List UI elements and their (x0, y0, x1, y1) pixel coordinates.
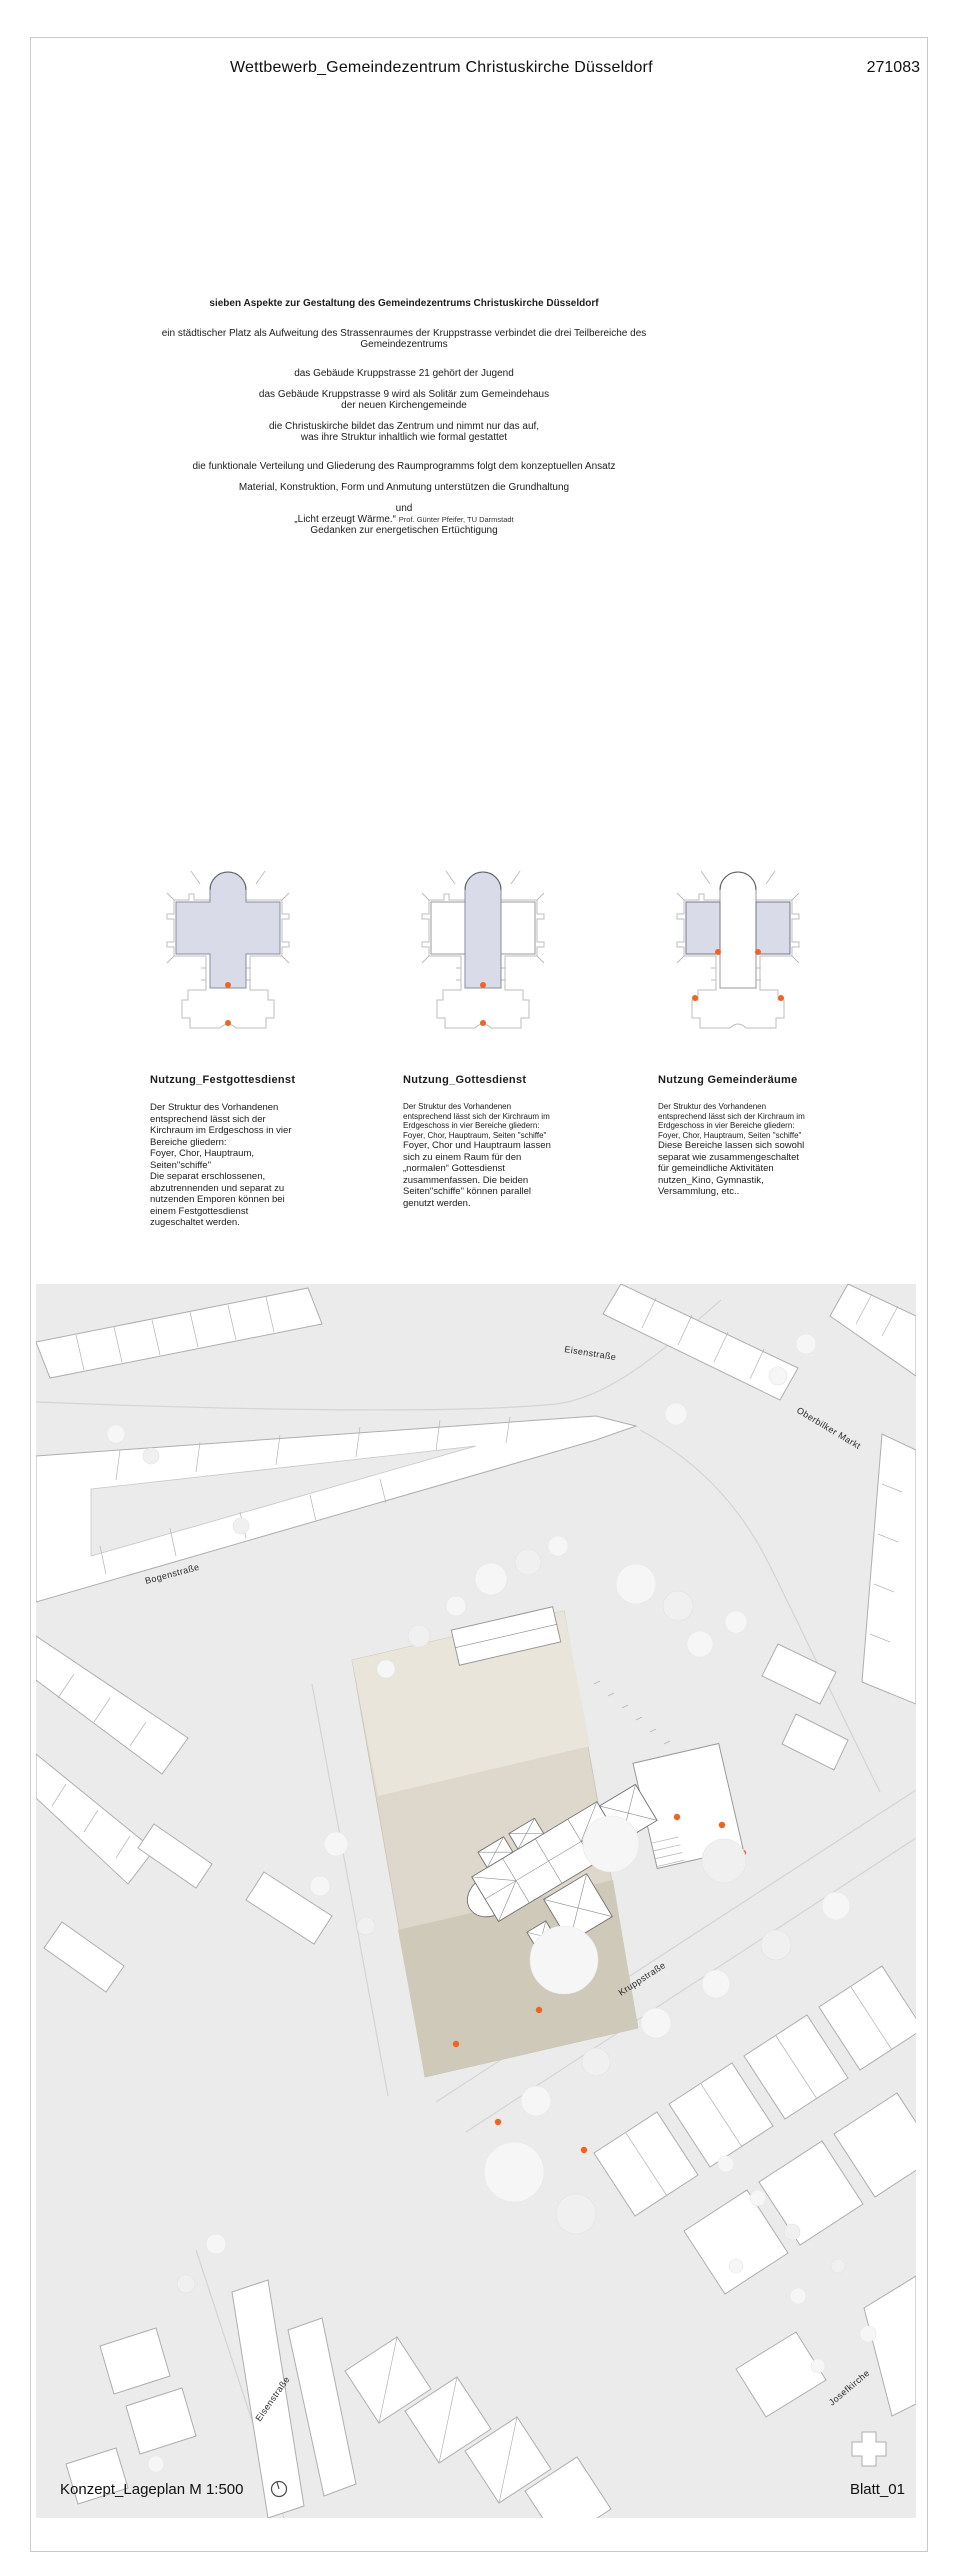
concept-text-block: sieben Aspekte zur Gestaltung des Gemein… (150, 298, 658, 536)
entry-marker (225, 982, 231, 988)
caption-gottesdienst: Nutzung_Gottesdienst Der Struktur des Vo… (403, 1074, 553, 1209)
concept-quote-line: „Licht erzeugt Wärme.“ Prof. Günter Pfei… (150, 514, 658, 525)
concept-paragraph: die Christuskirche bildet das Zentrum un… (150, 421, 658, 443)
caption-gemeinderaeume: Nutzung Gemeinderäume Der Struktur des V… (658, 1074, 808, 1198)
caption-festgottesdienst: Nutzung_Festgottesdienst Der Struktur de… (150, 1074, 300, 1229)
plan-caption: Konzept_Lageplan M 1:500 (60, 2479, 289, 2499)
entry-marker (715, 949, 721, 955)
entry-marker (778, 995, 784, 1001)
concept-paragraph: Gedanken zur energetischen Ertüchtigung (150, 525, 658, 536)
plan-diagram-festgottesdienst (148, 850, 308, 1050)
north-arrow-icon (269, 2479, 289, 2499)
plan-diagram-gemeinderaeume (658, 850, 818, 1050)
concept-paragraph: ein städtischer Platz als Aufweitung des… (150, 328, 658, 350)
concept-paragraph: das Gebäude Kruppstrasse 21 gehört der J… (150, 368, 658, 379)
concept-paragraph: und (150, 503, 658, 514)
entry-marker (755, 949, 761, 955)
plan-diagram-gottesdienst (403, 850, 563, 1050)
entry-marker (480, 982, 486, 988)
caption-title: Nutzung_Gottesdienst (403, 1074, 553, 1086)
entry-marker (480, 1020, 486, 1026)
concept-paragraph: Material, Konstruktion, Form und Anmutun… (150, 482, 658, 493)
concept-heading: sieben Aspekte zur Gestaltung des Gemein… (150, 298, 658, 309)
quote-credit: Prof. Günter Pfeifer, TU Darmstadt (399, 515, 514, 524)
plan-caption-text: Konzept_Lageplan M 1:500 (60, 2481, 243, 2498)
presentation-sheet: Wettbewerb_Gemeindezentrum Christuskirch… (0, 0, 958, 2560)
concept-paragraph: die funktionale Verteilung und Gliederun… (150, 461, 658, 472)
sheet-label: Blatt_01 (800, 2481, 905, 2498)
concept-paragraph: das Gebäude Kruppstrasse 9 wird als Soli… (150, 389, 658, 411)
entry-marker (225, 1020, 231, 1026)
caption-title: Nutzung_Festgottesdienst (150, 1074, 300, 1086)
sheet-title: Wettbewerb_Gemeindezentrum Christuskirch… (230, 59, 653, 77)
site-plan: Eisenstraße Oberbilker Markt Bogenstraße… (36, 1284, 916, 2518)
entry-marker (692, 995, 698, 1001)
caption-title: Nutzung Gemeinderäume (658, 1074, 808, 1086)
sheet-number: 271083 (820, 59, 920, 77)
